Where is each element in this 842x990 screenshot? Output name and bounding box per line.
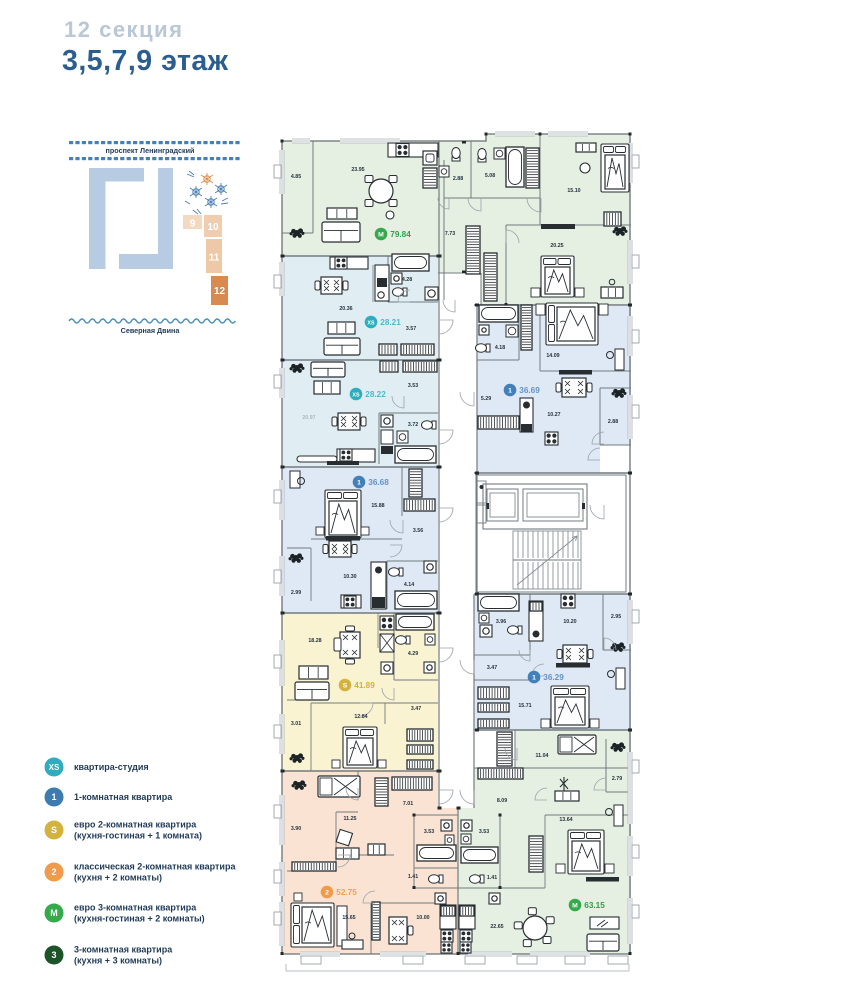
svg-text:15.10: 15.10 [567, 188, 580, 194]
svg-text:евро 2-комнатная квартира: евро 2-комнатная квартира [74, 820, 197, 830]
svg-text:XS: XS [367, 320, 375, 326]
svg-text:3,5,7,9 этаж: 3,5,7,9 этаж [62, 45, 229, 77]
svg-text:3.57: 3.57 [406, 326, 416, 332]
svg-text:15.65: 15.65 [342, 915, 355, 921]
svg-text:евро 3-комнатная квартира: евро 3-комнатная квартира [74, 903, 197, 913]
svg-text:S: S [51, 825, 57, 835]
svg-text:2: 2 [51, 867, 56, 877]
svg-text:3.47: 3.47 [487, 665, 497, 671]
svg-text:3.01: 3.01 [291, 721, 301, 727]
svg-text:Северная Двина: Северная Двина [121, 326, 181, 335]
svg-text:12.84: 12.84 [354, 714, 367, 720]
svg-text:41.89: 41.89 [354, 681, 375, 690]
svg-text:36.69: 36.69 [519, 386, 540, 395]
svg-text:1.41: 1.41 [487, 875, 497, 881]
svg-text:28.22: 28.22 [365, 390, 386, 399]
svg-text:18.28: 18.28 [308, 638, 321, 644]
svg-text:79.84: 79.84 [390, 230, 411, 239]
svg-text:M: M [572, 902, 578, 909]
svg-text:11.04: 11.04 [536, 753, 549, 759]
svg-text:15.88: 15.88 [371, 503, 384, 509]
svg-text:4.28: 4.28 [402, 277, 412, 283]
svg-text:2: 2 [325, 889, 329, 896]
svg-text:3.90: 3.90 [291, 826, 301, 832]
svg-text:20.97: 20.97 [302, 415, 315, 421]
svg-text:2.79: 2.79 [612, 776, 622, 782]
svg-text:10.00: 10.00 [416, 915, 429, 921]
svg-text:2.99: 2.99 [291, 590, 301, 596]
svg-text:3.53: 3.53 [424, 829, 434, 835]
svg-text:2.88: 2.88 [608, 419, 618, 425]
svg-text:3.53: 3.53 [408, 383, 418, 389]
svg-text:XS: XS [49, 763, 60, 772]
svg-text:7.01: 7.01 [403, 801, 413, 807]
svg-text:2.95: 2.95 [611, 614, 621, 620]
svg-text:8.09: 8.09 [497, 798, 507, 804]
svg-text:(кухня + 2 комнаты): (кухня + 2 комнаты) [74, 873, 162, 883]
svg-text:4.14: 4.14 [404, 582, 414, 588]
svg-text:20.36: 20.36 [339, 306, 352, 312]
svg-text:4.85: 4.85 [291, 174, 301, 180]
svg-text:3.53: 3.53 [479, 829, 489, 835]
svg-text:4.29: 4.29 [408, 651, 418, 657]
svg-text:11: 11 [209, 253, 220, 264]
svg-text:XS: XS [352, 392, 360, 398]
svg-text:3: 3 [51, 950, 56, 960]
svg-text:(кухня-гостиная + 2 комнаты): (кухня-гостиная + 2 комнаты) [74, 914, 205, 924]
svg-text:23.95: 23.95 [351, 167, 364, 173]
svg-text:1: 1 [51, 792, 56, 802]
svg-text:проспект Ленинградский: проспект Ленинградский [106, 146, 195, 155]
svg-text:4.18: 4.18 [495, 345, 505, 351]
svg-text:5.29: 5.29 [481, 396, 491, 402]
svg-text:12 секция: 12 секция [64, 17, 183, 42]
svg-text:15.71: 15.71 [518, 703, 531, 709]
svg-text:28.21: 28.21 [380, 318, 401, 327]
svg-text:20.25: 20.25 [550, 243, 563, 249]
svg-text:5.08: 5.08 [485, 173, 495, 179]
svg-text:9: 9 [190, 219, 196, 230]
svg-text:1: 1 [532, 674, 536, 681]
svg-text:1-комнатная квартира: 1-комнатная квартира [74, 792, 173, 802]
svg-text:36.68: 36.68 [368, 478, 389, 487]
svg-text:63.15: 63.15 [584, 901, 605, 910]
svg-text:1: 1 [357, 479, 361, 486]
svg-text:22.65: 22.65 [490, 924, 503, 930]
svg-text:52.75: 52.75 [336, 888, 357, 897]
svg-text:3.72: 3.72 [408, 422, 418, 428]
svg-text:2.88: 2.88 [453, 176, 463, 182]
svg-text:(кухня + 3 комнаты): (кухня + 3 комнаты) [74, 956, 162, 966]
svg-text:S: S [343, 682, 348, 689]
svg-text:10: 10 [207, 222, 219, 233]
svg-text:12: 12 [214, 286, 226, 297]
svg-text:10.20: 10.20 [563, 619, 576, 625]
svg-text:10.30: 10.30 [343, 574, 356, 580]
svg-text:(кухня-гостиная + 1 комната): (кухня-гостиная + 1 комната) [74, 831, 202, 841]
svg-text:1.41: 1.41 [408, 874, 418, 880]
svg-text:3.47: 3.47 [411, 706, 421, 712]
svg-text:квартира-студия: квартира-студия [74, 762, 149, 772]
svg-text:10.27: 10.27 [547, 412, 560, 418]
svg-text:3.96: 3.96 [496, 619, 506, 625]
svg-text:M: M [378, 231, 384, 238]
svg-text:классическая 2-комнатная кварт: классическая 2-комнатная квартира [74, 862, 236, 872]
svg-text:3.56: 3.56 [413, 528, 423, 534]
svg-text:7.73: 7.73 [445, 231, 455, 237]
svg-text:1: 1 [508, 387, 512, 394]
svg-text:11.25: 11.25 [344, 816, 357, 822]
svg-text:M: M [50, 908, 58, 918]
svg-text:13.64: 13.64 [559, 817, 572, 823]
svg-text:3-комнатная квартира: 3-комнатная квартира [74, 945, 173, 955]
svg-text:36.29: 36.29 [543, 673, 564, 682]
svg-text:14.09: 14.09 [546, 353, 559, 359]
